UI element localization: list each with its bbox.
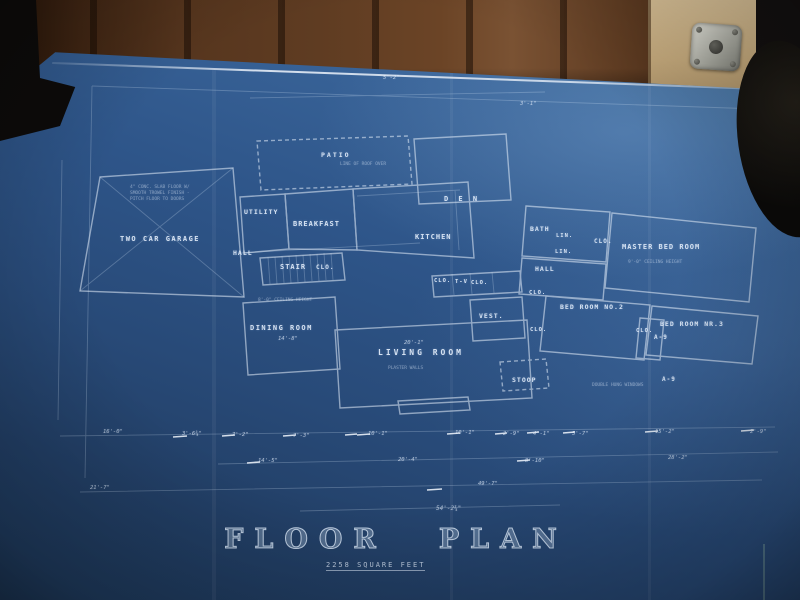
note-smooth-trowel-finish: SMOOTH TROWEL FINISH - — [130, 192, 190, 197]
note-8-0-ceiling-height: 8'-0" CEILING HEIGHT — [258, 299, 312, 304]
screw-icon — [730, 61, 736, 67]
note-double-hung-windows: DOUBLE HUNG WINDOWS — [592, 384, 643, 389]
note-9-0-ceiling-height: 9'-0" CEILING HEIGHT — [628, 261, 682, 266]
screw-icon — [696, 27, 702, 33]
floor-plan-title-word-plan: PLAN — [439, 524, 568, 555]
title-block: FLOOR PLAN — [222, 524, 570, 555]
blueprint-paper: TWO CAR GARAGEPATIOUTILITYBREAKFASTKITCH… — [0, 0, 800, 600]
metal-bracket — [689, 22, 742, 71]
screw-icon — [694, 59, 700, 65]
note-4-conc-slab-floor-w: 4" CONC. SLAB FLOOR W/ — [130, 186, 190, 191]
note-pitch-floor-to-doors: PITCH FLOOR TO DOORS — [130, 198, 184, 203]
bracket-hub — [709, 40, 724, 55]
floor-plan-title-word-floor: FLOOR — [224, 524, 387, 555]
screw-icon — [732, 29, 738, 35]
square-feet-subtitle: 2258 SQUARE FEET — [326, 561, 425, 571]
notes-layer: 4" CONC. SLAB FLOOR W/SMOOTH TROWEL FINI… — [0, 0, 800, 600]
note-plaster-walls: PLASTER WALLS — [388, 367, 423, 372]
note-line-of-roof-over: LINE OF ROOF OVER — [340, 163, 386, 168]
